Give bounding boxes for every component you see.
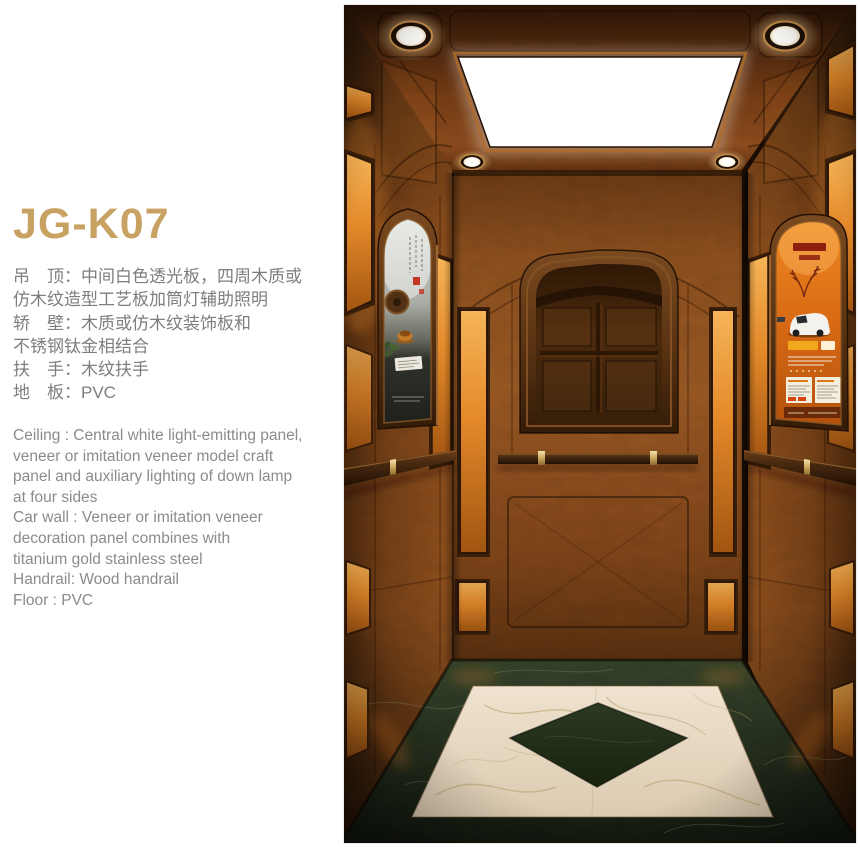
vignette — [344, 5, 856, 843]
spec-sheet: JG-K07 吊 顶：中间白色透光板，四周木质或 仿木纹造型工艺板加筒灯辅助照明… — [0, 0, 344, 850]
spec-line-en: titanium gold stainless steel — [13, 550, 338, 571]
english-specs: Ceiling : Central white light-emitting p… — [13, 426, 338, 611]
spec-line-zh: 地 板：PVC — [13, 381, 333, 404]
spec-line-zh: 仿木纹造型工艺板加筒灯辅助照明 — [13, 288, 333, 311]
spec-line-zh: 不锈钢钛金相结合 — [13, 335, 333, 358]
model-title: JG-K07 — [13, 200, 170, 249]
spec-line-en: Car wall : Veneer or imitation veneer — [13, 508, 338, 529]
spec-line-en: at four sides — [13, 488, 338, 509]
spec-line-en: veneer or imitation veneer model craft — [13, 447, 338, 468]
spec-line-zh: 扶 手：木纹扶手 — [13, 358, 333, 381]
spec-line-en: Ceiling : Central white light-emitting p… — [13, 426, 338, 447]
spec-line-en: panel and auxiliary lighting of down lam… — [13, 467, 338, 488]
spec-line-en: Floor : PVC — [13, 591, 338, 612]
spec-line-zh: 吊 顶：中间白色透光板，四周木质或 — [13, 265, 333, 288]
elevator-photo — [344, 5, 856, 843]
chinese-specs: 吊 顶：中间白色透光板，四周木质或 仿木纹造型工艺板加筒灯辅助照明 轿 壁：木质… — [13, 265, 333, 405]
spec-line-en: decoration panel combines with — [13, 529, 338, 550]
spec-line-en: Handrail: Wood handrail — [13, 570, 338, 591]
elevator-render — [344, 5, 856, 843]
spec-line-zh: 轿 壁：木质或仿木纹装饰板和 — [13, 312, 333, 335]
